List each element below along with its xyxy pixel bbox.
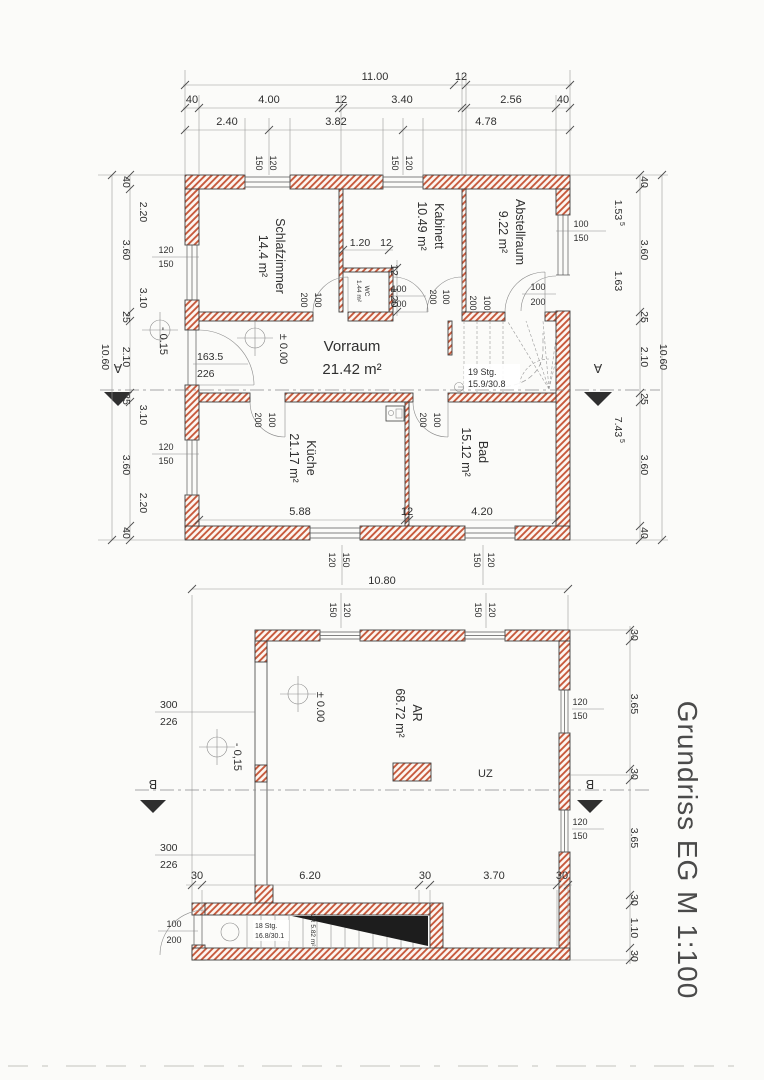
svg-text:4.00: 4.00 <box>258 94 279 106</box>
room-wc: WC 1.44 m² <box>355 280 370 303</box>
room-schlafzimmer: Schlafzimmer 14.4 m² <box>256 218 287 294</box>
svg-text:200: 200 <box>166 935 181 945</box>
svg-text:5: 5 <box>618 439 625 443</box>
lower-level-minus: - 0,15 <box>231 743 243 771</box>
lower-stair-ratio: 16.8/30.1 <box>255 933 284 940</box>
svg-text:12: 12 <box>388 264 400 276</box>
svg-text:200: 200 <box>468 295 478 310</box>
svg-text:30: 30 <box>628 629 640 641</box>
dim-lower-width: 10.80 <box>368 575 396 587</box>
svg-text:1.10: 1.10 <box>628 918 640 939</box>
room-area: 1.44 m² <box>355 280 362 303</box>
svg-text:100: 100 <box>267 412 277 427</box>
svg-text:1.63: 1.63 <box>612 271 624 292</box>
svg-text:300: 300 <box>160 699 178 711</box>
room-area: 21.17 m² <box>287 433 301 482</box>
svg-text:4.20: 4.20 <box>471 506 492 518</box>
room-abstellraum: Abstellraum 9.22 m² <box>496 199 527 265</box>
lower-wall-marks: 300 226 300 226 <box>155 699 255 871</box>
upper-level-zero: ± 0.00 <box>277 334 289 365</box>
svg-text:163.5: 163.5 <box>197 351 223 363</box>
room-vorraum-area: 21.42 m² <box>322 361 381 378</box>
appliance-symbol <box>386 406 404 421</box>
svg-text:120: 120 <box>327 552 337 567</box>
dim-12: 12 <box>455 71 467 83</box>
dim-total-width: 11.00 <box>362 71 389 83</box>
svg-text:12: 12 <box>380 237 392 249</box>
room-kabinett: Kabinett 10.49 m² <box>415 201 446 250</box>
lower-level-marks <box>199 676 316 765</box>
section-line-b: B B <box>135 777 650 813</box>
upper-inner-bottom-dims: 5.88 12 4.20 <box>195 506 560 524</box>
svg-text:40: 40 <box>120 176 132 188</box>
door-size-labels: 200 100 200 100 200 100 200 100 200 100 … <box>253 282 556 428</box>
room-name: Abstellraum <box>513 199 527 265</box>
svg-text:100: 100 <box>441 289 451 304</box>
svg-text:25: 25 <box>120 393 132 405</box>
svg-text:200: 200 <box>299 292 309 307</box>
uz-label: UZ <box>478 768 493 780</box>
lower-right-dims: 30 3.65 30 3.65 30 1.10 30 <box>570 626 640 964</box>
svg-text:120: 120 <box>404 155 414 170</box>
svg-text:200: 200 <box>530 297 545 307</box>
svg-text:120: 120 <box>572 817 587 827</box>
upper-left-dims: 40 2.20 3.60 3.10 25 2.10 25 3.10 3.60 2… <box>98 171 185 544</box>
svg-text:40: 40 <box>638 527 650 539</box>
svg-text:40: 40 <box>638 176 650 188</box>
svg-text:25: 25 <box>638 311 650 323</box>
floor-plan-svg: 19 Stg. 15.9/30.8 A A Schlafzimmer 14.4 … <box>0 0 764 1080</box>
svg-text:120: 120 <box>572 697 587 707</box>
room-vorraum-name: Vorraum <box>324 338 381 355</box>
svg-text:25: 25 <box>638 393 650 405</box>
upper-top-dims: 11.00 12 40 4.00 12 3.40 2.56 40 2.40 3.… <box>181 70 574 175</box>
svg-text:200: 200 <box>253 412 263 427</box>
svg-text:30: 30 <box>628 950 640 962</box>
upper-outer-walls <box>185 175 570 540</box>
svg-text:30: 30 <box>191 870 203 882</box>
svg-text:5: 5 <box>618 222 625 226</box>
svg-text:40: 40 <box>186 94 198 106</box>
uz-beam: UZ <box>393 763 493 781</box>
room-name: AR <box>410 704 424 721</box>
room-area: 9.22 m² <box>496 211 510 253</box>
svg-text:100: 100 <box>432 412 442 427</box>
section-b-arrow-right <box>577 800 603 813</box>
svg-text:3.65: 3.65 <box>628 694 640 715</box>
svg-text:100: 100 <box>482 295 492 310</box>
svg-text:30: 30 <box>628 894 640 906</box>
room-area: 14.4 m² <box>256 235 270 277</box>
svg-text:30: 30 <box>419 870 431 882</box>
section-a-label-right: A <box>593 361 602 375</box>
svg-text:120: 120 <box>342 602 352 617</box>
entry-door-size: 163.5 226 <box>193 351 248 380</box>
drawing-sheet: 19 Stg. 15.9/30.8 A A Schlafzimmer 14.4 … <box>0 0 764 1080</box>
svg-text:150: 150 <box>473 602 483 617</box>
right-total: 10.60 <box>657 344 669 370</box>
drawing-title: Grundriss EG M 1:100 <box>672 701 703 1000</box>
lower-stair-count: 18 Stg. <box>255 923 277 930</box>
svg-text:226: 226 <box>160 716 178 728</box>
svg-text:12: 12 <box>335 94 347 106</box>
svg-text:3.70: 3.70 <box>483 870 504 882</box>
stair-count-label: 19 Stg. <box>468 367 497 377</box>
svg-text:100: 100 <box>313 292 323 307</box>
svg-text:40: 40 <box>557 94 569 106</box>
lower-windows <box>194 630 570 945</box>
svg-text:2.10: 2.10 <box>638 347 650 368</box>
svg-text:3.65: 3.65 <box>628 828 640 849</box>
room-area: 15.12 m² <box>459 427 473 476</box>
room-area: 10.49 m² <box>415 201 429 250</box>
upper-staircase: 19 Stg. 15.9/30.8 <box>455 321 557 393</box>
svg-text:226: 226 <box>197 368 215 380</box>
section-b-arrow-left <box>140 800 166 813</box>
left-total: 10.60 <box>99 344 111 370</box>
svg-text:200: 200 <box>428 289 438 304</box>
svg-text:1.20: 1.20 <box>388 287 400 308</box>
stair-vr-label: VR 5.82 m² <box>309 914 316 948</box>
lower-level-zero: ± 0.00 <box>314 692 326 723</box>
svg-text:40: 40 <box>120 527 132 539</box>
svg-text:2.40: 2.40 <box>216 116 237 128</box>
svg-text:30: 30 <box>628 768 640 780</box>
svg-text:2.56: 2.56 <box>500 94 521 106</box>
upper-windows <box>185 175 570 540</box>
room-area: 68.72 m² <box>393 688 407 737</box>
svg-text:120: 120 <box>158 442 173 452</box>
room-name: Schlafzimmer <box>273 218 287 294</box>
svg-text:120: 120 <box>268 155 278 170</box>
svg-text:150: 150 <box>328 602 338 617</box>
svg-text:6.20: 6.20 <box>299 870 320 882</box>
room-name: WC <box>363 286 370 297</box>
svg-text:226: 226 <box>160 859 178 871</box>
room-ar: AR 68.72 m² <box>393 688 424 737</box>
room-name: Küche <box>304 440 318 475</box>
svg-text:3.10: 3.10 <box>137 288 149 309</box>
lower-staircase: 18 Stg. 16.8/30.1 VR 5.82 m² <box>221 914 428 948</box>
svg-text:12: 12 <box>401 506 413 518</box>
room-bad: Bad 15.12 m² <box>459 427 490 476</box>
mid-dims: 10.80 <box>188 545 572 905</box>
svg-text:2.10: 2.10 <box>120 347 132 368</box>
section-b-label-right: B <box>586 777 594 791</box>
svg-text:150: 150 <box>158 456 173 466</box>
svg-text:150: 150 <box>254 155 264 170</box>
stair-ratio-label: 15.9/30.8 <box>468 379 506 389</box>
svg-text:120: 120 <box>158 245 173 255</box>
svg-text:5.88: 5.88 <box>289 506 310 518</box>
svg-text:150: 150 <box>158 259 173 269</box>
svg-text:120: 120 <box>487 602 497 617</box>
svg-text:150: 150 <box>390 155 400 170</box>
lower-plan: 18 Stg. 16.8/30.1 VR 5.82 m² UZ B B AR 6… <box>135 602 650 964</box>
svg-text:100: 100 <box>166 919 181 929</box>
svg-text:100: 100 <box>530 282 545 292</box>
svg-text:3.82: 3.82 <box>325 116 346 128</box>
svg-text:1.53: 1.53 <box>612 200 624 221</box>
section-a-arrow-right <box>584 392 612 406</box>
upper-plan: 19 Stg. 15.9/30.8 A A Schlafzimmer 14.4 … <box>100 155 660 567</box>
svg-text:150: 150 <box>573 233 588 243</box>
svg-text:100: 100 <box>573 219 588 229</box>
room-name: Kabinett <box>432 203 446 249</box>
svg-text:120: 120 <box>486 552 496 567</box>
room-kueche: Küche 21.17 m² <box>287 433 318 482</box>
svg-text:150: 150 <box>572 711 587 721</box>
svg-text:25: 25 <box>120 311 132 323</box>
svg-text:2.20: 2.20 <box>137 493 149 514</box>
svg-text:2.20: 2.20 <box>137 202 149 223</box>
section-b-label-left: B <box>149 777 157 791</box>
svg-text:1.20: 1.20 <box>350 237 371 249</box>
lower-window-labels: 150 120 150 120 120 150 120 150 100 200 <box>158 602 604 945</box>
lower-outer-walls <box>192 630 570 960</box>
svg-text:3.60: 3.60 <box>638 240 650 261</box>
upper-level-minus: - 0.15 <box>157 327 169 355</box>
svg-text:3.10: 3.10 <box>137 405 149 426</box>
svg-text:30: 30 <box>556 870 568 882</box>
svg-text:3.60: 3.60 <box>638 455 650 476</box>
room-name: Bad <box>476 441 490 463</box>
svg-text:7.43: 7.43 <box>612 417 624 438</box>
svg-text:150: 150 <box>472 552 482 567</box>
svg-text:4.78: 4.78 <box>475 116 496 128</box>
svg-text:3.40: 3.40 <box>391 94 412 106</box>
svg-text:150: 150 <box>572 831 587 841</box>
svg-text:300: 300 <box>160 842 178 854</box>
svg-text:3.60: 3.60 <box>120 240 132 261</box>
svg-text:200: 200 <box>418 412 428 427</box>
svg-text:3.60: 3.60 <box>120 455 132 476</box>
svg-text:150: 150 <box>341 552 351 567</box>
